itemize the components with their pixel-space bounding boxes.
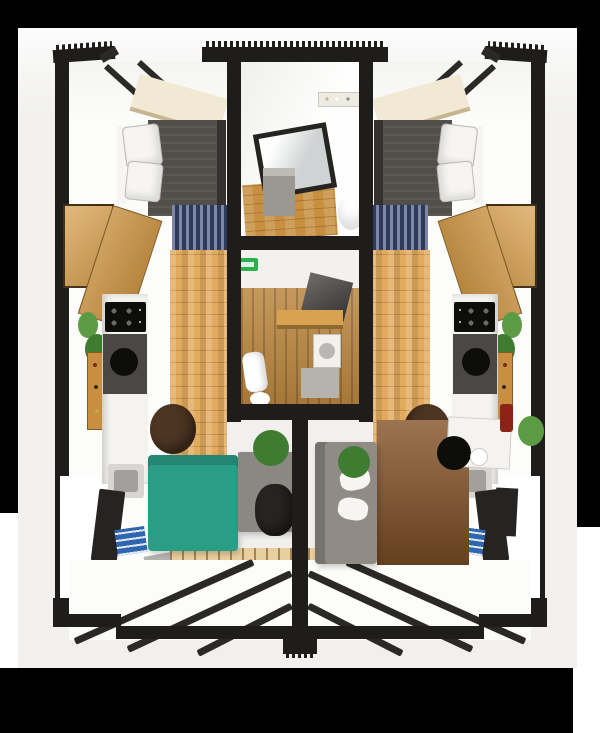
desk-lamp <box>470 448 488 466</box>
bathroom-shelf <box>318 92 360 107</box>
facade-base <box>305 626 484 639</box>
desk-plant <box>518 416 544 446</box>
side-table-plant <box>338 446 370 478</box>
cooking-pot <box>110 348 138 376</box>
letterbox-right-bar <box>577 0 600 527</box>
red-accent-item <box>500 404 513 432</box>
hall-mat <box>301 368 339 398</box>
hall-wall <box>359 246 373 422</box>
facade-step <box>53 614 121 627</box>
bathroom-wall <box>227 56 241 254</box>
desk-plant <box>253 430 289 466</box>
facade-base <box>116 626 295 639</box>
letterbox-top-bar <box>0 0 600 28</box>
letterbox-left-bar <box>0 0 18 513</box>
office-chair <box>255 484 295 536</box>
facade-step <box>479 614 547 627</box>
blue-books <box>114 526 147 556</box>
cooktop <box>105 302 146 332</box>
bathroom-wall <box>359 56 373 254</box>
letterbox-bottom-bar <box>0 668 573 733</box>
facade-center-stub <box>283 626 317 654</box>
bed-footboard <box>374 120 383 216</box>
party-wall <box>292 418 308 628</box>
cooking-pot <box>462 348 490 376</box>
sink-cabinet <box>263 168 295 216</box>
core-divider-wall <box>227 236 373 250</box>
hall-wall <box>227 246 241 422</box>
floorplan-render <box>0 0 600 733</box>
hall-counter <box>277 310 343 329</box>
bed-footboard <box>217 120 226 216</box>
bed-pillow <box>436 160 476 203</box>
office-chair <box>437 436 471 470</box>
dark-cabinet <box>494 487 518 536</box>
bed-pillow <box>124 160 164 203</box>
teal-sofa <box>148 455 238 551</box>
washing-machine <box>313 334 341 368</box>
cooktop <box>454 302 495 332</box>
leather-stool <box>150 404 196 454</box>
facade-stub-teeth <box>286 652 314 658</box>
